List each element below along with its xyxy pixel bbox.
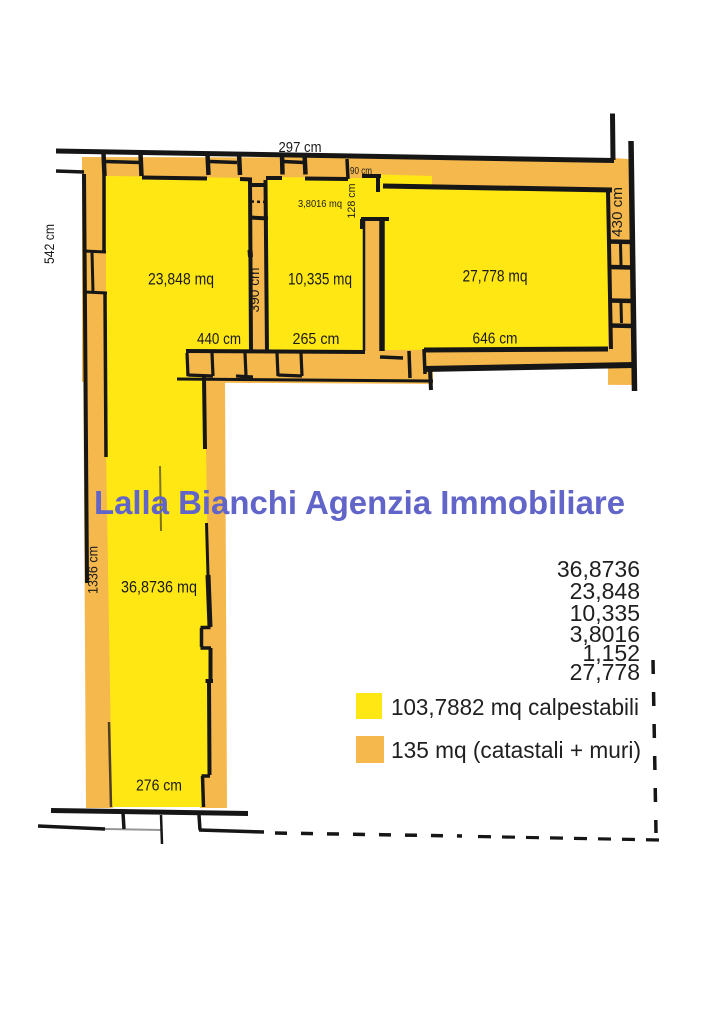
svg-text:135 mq (catastali + muri): 135 mq (catastali + muri) — [391, 737, 641, 763]
svg-text:276 cm: 276 cm — [136, 778, 182, 795]
svg-text:10,335 mq: 10,335 mq — [288, 271, 352, 289]
svg-text:27,778: 27,778 — [570, 659, 640, 685]
svg-text:430 cm: 430 cm — [610, 187, 626, 237]
svg-text:27,778 mq: 27,778 mq — [463, 268, 528, 286]
svg-text:440 cm: 440 cm — [197, 331, 241, 348]
svg-text:Lalla Bianchi Agenzia Immobili: Lalla Bianchi Agenzia Immobiliare — [94, 484, 625, 521]
svg-text:1336 cm: 1336 cm — [85, 546, 101, 594]
svg-text:646 cm: 646 cm — [473, 331, 518, 348]
svg-text:390 cm: 390 cm — [246, 268, 262, 313]
svg-text:128 cm: 128 cm — [346, 184, 358, 219]
svg-text:297 cm: 297 cm — [279, 139, 322, 156]
svg-text:23,848 mq: 23,848 mq — [148, 271, 214, 289]
svg-text:36,8736 mq: 36,8736 mq — [121, 579, 197, 597]
svg-text:265 cm: 265 cm — [293, 331, 340, 348]
svg-text:542 cm: 542 cm — [41, 224, 57, 264]
svg-text:90 cm: 90 cm — [350, 165, 372, 177]
svg-text:103,7882 mq calpestabili: 103,7882 mq calpestabili — [391, 694, 639, 720]
svg-text:3,8016 mq: 3,8016 mq — [298, 198, 342, 210]
